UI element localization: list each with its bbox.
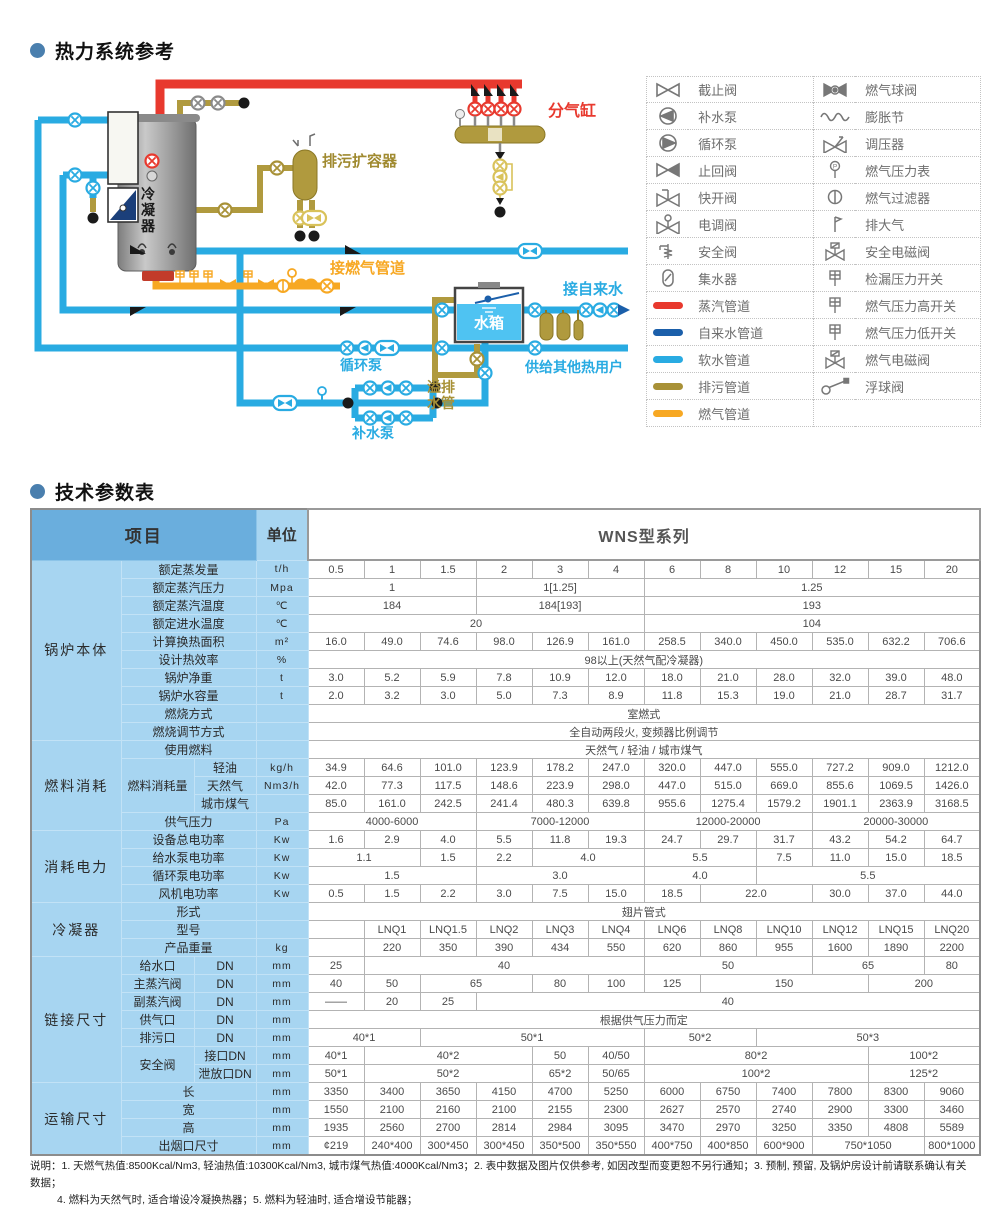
legend-row: 循环泵调压器 <box>646 130 981 157</box>
item-label-cell: 使用燃料 <box>121 741 256 759</box>
item-label-cell: 燃烧调节方式 <box>121 723 256 741</box>
value-cell: 3400 <box>364 1083 420 1101</box>
value-cell: 340.0 <box>700 633 756 651</box>
value-cell: 2200 <box>924 939 980 957</box>
value-cell: 5.5 <box>476 831 532 849</box>
value-cell: 50*1 <box>308 1065 364 1083</box>
value-cell: 29.7 <box>700 831 756 849</box>
value-cell: 15.0 <box>868 849 924 867</box>
value-cell: 3460 <box>924 1101 980 1119</box>
value-cell: 7.5 <box>756 849 812 867</box>
value-cell: 390 <box>476 939 532 957</box>
value-cell: 80 <box>532 975 588 993</box>
makeup-pump-label: 补水泵 <box>351 425 394 441</box>
value-cell: 258.5 <box>644 633 700 651</box>
value-cell: 2900 <box>812 1101 868 1119</box>
unit-cell: mm <box>256 1047 308 1065</box>
category-cell: 燃料消耗 <box>31 741 121 831</box>
value-cell: 42.0 <box>308 777 364 795</box>
value-cell: 28.0 <box>756 669 812 687</box>
value-cell: LNQ1 <box>364 921 420 939</box>
value-cell: 800*1000 <box>924 1137 980 1156</box>
value-cell: 80 <box>924 957 980 975</box>
unit-cell <box>256 741 308 759</box>
value-cell: 2300 <box>588 1101 644 1119</box>
value-cell: 30.0 <box>812 885 868 903</box>
value-cell: 450.0 <box>756 633 812 651</box>
value-cell: 64.7 <box>924 831 980 849</box>
table-row: 出烟口尺寸mm¢219240*400300*450300*450350*5003… <box>31 1137 980 1156</box>
unit-cell: m² <box>256 633 308 651</box>
other-users-label: 供给其他热用户 <box>524 359 623 375</box>
legend-label: 燃气电磁阀 <box>855 346 981 373</box>
value-cell: 77.3 <box>364 777 420 795</box>
value-cell: 955.6 <box>644 795 700 813</box>
item-label-cell: 额定进水温度 <box>121 615 256 633</box>
table-row: 额定蒸汽压力Mpa11[1.25]1.25 <box>31 579 980 597</box>
legend-row: 电调阀排大气 <box>646 211 981 238</box>
table-row: 循环泵电功率Kw1.53.04.05.5 <box>31 867 980 885</box>
value-cell: —— <box>308 993 364 1011</box>
value-cell: 178.2 <box>532 759 588 777</box>
item-sublabel-cell: 接口DN <box>194 1047 256 1065</box>
steam-header <box>455 84 545 218</box>
value-cell: 955 <box>756 939 812 957</box>
item-label-cell: 额定蒸汽压力 <box>121 579 256 597</box>
value-cell: 3.0 <box>476 867 644 885</box>
section-title-text: 热力系统参考 <box>55 37 175 64</box>
value-cell: 21.0 <box>812 687 868 705</box>
params-section-title: 技术参数表 <box>30 478 155 505</box>
value-cell: 50 <box>532 1047 588 1065</box>
legend-label: 燃气过滤器 <box>855 184 981 211</box>
unit-cell: mm <box>256 1137 308 1156</box>
unit-cell: mm <box>256 993 308 1011</box>
value-cell: 24.7 <box>644 831 700 849</box>
value-cell: 19.3 <box>588 831 644 849</box>
section-bullet-icon <box>30 43 45 58</box>
legend-label: 蒸汽管道 <box>688 292 813 319</box>
unit-cell: mm <box>256 1101 308 1119</box>
value-cell: 31.7 <box>756 831 812 849</box>
unit-cell <box>256 795 308 813</box>
item-label-cell: 高 <box>121 1119 256 1137</box>
unit-cell: mm <box>256 975 308 993</box>
value-cell: 64.6 <box>364 759 420 777</box>
item-label-cell: 给水口 <box>121 957 194 975</box>
leak-pressure-switch-icon <box>813 265 855 292</box>
value-cell: 632.2 <box>868 633 924 651</box>
unit-cell <box>256 723 308 741</box>
value-cell: 2.9 <box>364 831 420 849</box>
value-cell: 6000 <box>644 1083 700 1101</box>
value-cell: 8 <box>700 560 756 579</box>
value-cell: 434 <box>532 939 588 957</box>
value-cell: 1.5 <box>364 885 420 903</box>
item-label-cell: 出烟口尺寸 <box>121 1137 256 1156</box>
unit-cell: t <box>256 669 308 687</box>
table-row: 供气压力Pa4000-60007000-1200012000-200002000… <box>31 813 980 831</box>
unit-cell: mm <box>256 1029 308 1047</box>
table-row: 风机电功率Kw0.51.52.23.07.515.018.522.030.037… <box>31 885 980 903</box>
value-cell: 4 <box>588 560 644 579</box>
value-cell: 3095 <box>588 1119 644 1137</box>
item-label-cell: 设备总电功率 <box>121 831 256 849</box>
legend-label: 安全电磁阀 <box>855 238 981 265</box>
value-cell: 9060 <box>924 1083 980 1101</box>
value-cell <box>308 921 364 939</box>
item-label-cell: 型号 <box>121 921 256 939</box>
value-cell: 5.5 <box>644 849 756 867</box>
value-cell: 65 <box>812 957 924 975</box>
unit-cell: mm <box>256 1119 308 1137</box>
value-cell: 100*2 <box>644 1065 868 1083</box>
value-cell: 126.9 <box>532 633 588 651</box>
params-table: 项目 单位 WNS型系列 锅炉本体额定蒸发量t/h0.511.523468101… <box>30 508 981 1156</box>
legend-label: 燃气压力表 <box>855 157 981 184</box>
value-cell: 18.5 <box>924 849 980 867</box>
water-tank-label: 水箱 <box>474 314 504 332</box>
value-cell: 65 <box>420 975 532 993</box>
value-cell: 117.5 <box>420 777 476 795</box>
unit-cell: Kw <box>256 867 308 885</box>
steam-pipe-icon <box>646 292 688 319</box>
item-label-cell: 主蒸汽阀 <box>121 975 194 993</box>
value-cell: 1[1.25] <box>476 579 644 597</box>
value-cell: 860 <box>700 939 756 957</box>
unit-cell: ℃ <box>256 615 308 633</box>
value-cell: 242.5 <box>420 795 476 813</box>
value-cell: 855.6 <box>812 777 868 795</box>
value-cell: 3250 <box>756 1119 812 1137</box>
value-cell: 4.0 <box>420 831 476 849</box>
table-row: 安全阀接口DNmm40*140*25040/5080*2100*2 <box>31 1047 980 1065</box>
value-cell: 40 <box>364 957 644 975</box>
value-cell: 6 <box>644 560 700 579</box>
item-sublabel-cell: 轻油 <box>194 759 256 777</box>
value-cell: LNQ1.5 <box>420 921 476 939</box>
value-cell: 4808 <box>868 1119 924 1137</box>
legend-label: 快开阀 <box>688 184 813 211</box>
value-cell: 5.0 <box>476 687 532 705</box>
item-label-cell: 宽 <box>121 1101 256 1119</box>
unit-cell <box>256 705 308 723</box>
value-cell: 3.2 <box>364 687 420 705</box>
overflow-pipe-label: 溢排水管 <box>427 379 459 411</box>
legend-label: 电调阀 <box>688 211 813 238</box>
value-cell: 50*2 <box>644 1029 756 1047</box>
value-cell: 天然气 / 轻油 / 城市煤气 <box>308 741 980 759</box>
safety-valve-icon <box>646 238 688 265</box>
params-table-wrap: 项目 单位 WNS型系列 锅炉本体额定蒸发量t/h0.511.523468101… <box>30 508 981 1156</box>
table-row: 供气口DNmm根据供气压力而定 <box>31 1011 980 1029</box>
params-table-body: 锅炉本体额定蒸发量t/h0.511.52346810121520额定蒸汽压力Mp… <box>31 560 980 1155</box>
value-cell: 3470 <box>644 1119 700 1137</box>
circulation-pump-label: 循环泵 <box>340 357 382 373</box>
value-cell: 10 <box>756 560 812 579</box>
value-cell: 0.5 <box>308 885 364 903</box>
pressure-regulator-icon <box>813 130 855 157</box>
table-row: 锅炉水容量t2.03.23.05.07.38.911.815.319.021.0… <box>31 687 980 705</box>
legend-label: 循环泵 <box>688 130 813 157</box>
value-cell: 1426.0 <box>924 777 980 795</box>
value-cell: 320.0 <box>644 759 700 777</box>
value-cell: 193 <box>644 597 980 615</box>
item-label-cell: 燃料消耗量 <box>121 759 194 813</box>
value-cell: 98.0 <box>476 633 532 651</box>
value-cell: 74.6 <box>420 633 476 651</box>
table-row: 额定蒸汽温度℃184184[193]193 <box>31 597 980 615</box>
value-cell: 21.0 <box>700 669 756 687</box>
legend-row: 排污管道浮球阀 <box>646 373 981 400</box>
table-row: 额定进水温度℃20104 <box>31 615 980 633</box>
tap-water-pipe-icon <box>646 319 688 346</box>
legend-label: 检漏压力开关 <box>855 265 981 292</box>
legend-label: 止回阀 <box>688 157 813 184</box>
legend-label: 安全阀 <box>688 238 813 265</box>
value-cell: 161.0 <box>364 795 420 813</box>
value-cell: 40 <box>476 993 980 1011</box>
water-tank <box>455 282 523 342</box>
item-label-cell: 燃烧方式 <box>121 705 256 723</box>
value-cell: 2100 <box>476 1101 532 1119</box>
legend-label: 燃气管道 <box>688 400 813 427</box>
value-cell: LNQ10 <box>756 921 812 939</box>
value-cell: 25 <box>308 957 364 975</box>
value-cell: 100*2 <box>868 1047 980 1065</box>
value-cell: 184 <box>308 597 476 615</box>
legend: 截止阀燃气球阀补水泵膨胀节循环泵调压器止回阀燃气压力表快开阀燃气过滤器电调阀排大… <box>646 76 981 427</box>
safety-solenoid-valve-icon <box>813 238 855 265</box>
table-row: 锅炉净重t3.05.25.97.810.912.018.021.028.032.… <box>31 669 980 687</box>
item-label-cell: 锅炉净重 <box>121 669 256 687</box>
value-cell: 31.7 <box>924 687 980 705</box>
value-cell: 28.7 <box>868 687 924 705</box>
table-row: 排污口DNmm40*150*150*250*3 <box>31 1029 980 1047</box>
item-label-cell: 形式 <box>121 903 256 921</box>
value-cell: 447.0 <box>700 759 756 777</box>
value-cell: 1935 <box>308 1119 364 1137</box>
value-cell: 1600 <box>812 939 868 957</box>
value-cell: 184[193] <box>476 597 644 615</box>
legend-row: 自来水管道燃气压力低开关 <box>646 319 981 346</box>
value-cell: 101.0 <box>420 759 476 777</box>
header-unit: 单位 <box>256 509 308 560</box>
value-cell: 600*900 <box>756 1137 812 1156</box>
table-row: 冷凝器形式翅片管式 <box>31 903 980 921</box>
value-cell: 2627 <box>644 1101 700 1119</box>
value-cell: 44.0 <box>924 885 980 903</box>
unit-cell <box>256 903 308 921</box>
item-label-cell: 产品重量 <box>121 939 256 957</box>
value-cell: 室燃式 <box>308 705 980 723</box>
value-cell: 706.6 <box>924 633 980 651</box>
value-cell: 7000-12000 <box>476 813 644 831</box>
value-cell: 100 <box>588 975 644 993</box>
value-cell: 223.9 <box>532 777 588 795</box>
value-cell: 104 <box>644 615 980 633</box>
unit-cell: Kw <box>256 831 308 849</box>
table-row: 给水泵电功率Kw1.11.52.24.05.57.511.015.018.5 <box>31 849 980 867</box>
value-cell: 1.5 <box>420 560 476 579</box>
value-cell: 2160 <box>420 1101 476 1119</box>
value-cell: 4.0 <box>644 867 756 885</box>
condenser-label: 冷凝器 <box>141 186 159 234</box>
legend-label: 燃气压力低开关 <box>855 319 981 346</box>
value-cell: 18.5 <box>644 885 700 903</box>
value-cell: 1.1 <box>308 849 420 867</box>
table-row: 链接尺寸给水口DNmm2540506580 <box>31 957 980 975</box>
float-valve-icon <box>813 373 855 400</box>
value-cell: 1901.1 <box>812 795 868 813</box>
value-cell: 447.0 <box>644 777 700 795</box>
unit-cell <box>256 921 308 939</box>
value-cell: 2.2 <box>476 849 532 867</box>
value-cell: 161.0 <box>588 633 644 651</box>
item-label-cell: 计算换热面积 <box>121 633 256 651</box>
gas-ball-valve-icon <box>813 76 855 103</box>
value-cell: 43.2 <box>812 831 868 849</box>
value-cell: 12.0 <box>588 669 644 687</box>
quick-open-valve-icon <box>646 184 688 211</box>
tap-water-label: 接自来水 <box>563 280 624 298</box>
page: P <box>0 0 981 1226</box>
value-cell: 4700 <box>532 1083 588 1101</box>
unit-cell: Kw <box>256 849 308 867</box>
value-cell: 全自动两段火, 变频器比例调节 <box>308 723 980 741</box>
value-cell: 2700 <box>420 1119 476 1137</box>
value-cell: 65*2 <box>532 1065 588 1083</box>
legend-label: 燃气球阀 <box>855 76 981 103</box>
table-row: 燃料消耗量轻油kg/h34.964.6101.0123.9178.2247.03… <box>31 759 980 777</box>
category-cell: 链接尺寸 <box>31 957 121 1083</box>
legend-row: 集水器检漏压力开关 <box>646 265 981 292</box>
value-cell: 8.9 <box>588 687 644 705</box>
header-series: WNS型系列 <box>308 509 980 560</box>
thermal-section-title: 热力系统参考 <box>30 37 175 64</box>
value-cell: 34.9 <box>308 759 364 777</box>
diagram-svg: 分气缸 排污扩容器 接燃气管道 接自来水 水箱 循环泵 补水泵 供给其他热用户 <box>30 66 630 460</box>
value-cell: LNQ4 <box>588 921 644 939</box>
legend-row: 软水管道燃气电磁阀 <box>646 346 981 373</box>
table-row: 副蒸汽阀DNmm——202540 <box>31 993 980 1011</box>
value-cell: 148.6 <box>476 777 532 795</box>
category-cell: 消耗电力 <box>31 831 121 903</box>
legend-label: 补水泵 <box>688 103 813 130</box>
value-cell: 1069.5 <box>868 777 924 795</box>
item-label-cell: 额定蒸汽温度 <box>121 597 256 615</box>
thermal-system-diagram: 分气缸 排污扩容器 接燃气管道 接自来水 水箱 循环泵 补水泵 供给其他热用户 … <box>30 66 630 465</box>
value-cell: 19.0 <box>756 687 812 705</box>
section-bullet-icon <box>30 484 45 499</box>
item-sublabel-cell: 城市煤气 <box>194 795 256 813</box>
expansion-joint-icon <box>813 103 855 130</box>
value-cell: 8300 <box>868 1083 924 1101</box>
legend-row: 蒸汽管道燃气压力高开关 <box>646 292 981 319</box>
value-cell: 85.0 <box>308 795 364 813</box>
value-cell: 1212.0 <box>924 759 980 777</box>
makeup-pump-icon <box>646 103 688 130</box>
soft-water-pipe-icon <box>646 346 688 373</box>
legend-row: 补水泵膨胀节 <box>646 103 981 130</box>
value-cell: 50*1 <box>420 1029 644 1047</box>
value-cell: 2970 <box>700 1119 756 1137</box>
value-cell: 3350 <box>812 1119 868 1137</box>
category-cell: 冷凝器 <box>31 903 121 957</box>
legend-label: 软水管道 <box>688 346 813 373</box>
value-cell: LNQ2 <box>476 921 532 939</box>
steam-header-label: 分气缸 <box>548 101 596 120</box>
item-label-cell: 安全阀 <box>121 1047 194 1083</box>
value-cell: LNQ20 <box>924 921 980 939</box>
category-cell: 运输尺寸 <box>31 1083 121 1156</box>
value-cell: 48.0 <box>924 669 980 687</box>
value-cell: 12000-20000 <box>644 813 812 831</box>
value-cell: ¢219 <box>308 1137 364 1156</box>
value-cell: 50/65 <box>588 1065 644 1083</box>
item-sublabel-cell: DN <box>194 975 256 993</box>
value-cell: LNQ12 <box>812 921 868 939</box>
value-cell: 3.0 <box>420 687 476 705</box>
value-cell: 11.8 <box>532 831 588 849</box>
value-cell: 5.5 <box>756 867 980 885</box>
value-cell: 3350 <box>308 1083 364 1101</box>
unit-cell: kg <box>256 939 308 957</box>
value-cell: 300*450 <box>476 1137 532 1156</box>
value-cell: 1550 <box>308 1101 364 1119</box>
value-cell: 4000-6000 <box>308 813 476 831</box>
value-cell: 20 <box>364 993 420 1011</box>
gas-solenoid-valve-icon <box>813 346 855 373</box>
table-row: 主蒸汽阀DNmm40506580100125150200 <box>31 975 980 993</box>
value-cell: 翅片管式 <box>308 903 980 921</box>
value-cell: 669.0 <box>756 777 812 795</box>
section-title-text: 技术参数表 <box>55 478 155 505</box>
value-cell: 350*550 <box>588 1137 644 1156</box>
table-row: 锅炉本体额定蒸发量t/h0.511.52346810121520 <box>31 560 980 579</box>
value-cell: 400*850 <box>700 1137 756 1156</box>
table-row: 高mm1935256027002814298430953470297032503… <box>31 1119 980 1137</box>
value-cell: 2 <box>476 560 532 579</box>
value-cell: 11.0 <box>812 849 868 867</box>
item-label-cell: 额定蒸发量 <box>121 560 256 579</box>
gas-pressure-low-switch-icon <box>813 319 855 346</box>
value-cell: 15 <box>868 560 924 579</box>
legend-label: 集水器 <box>688 265 813 292</box>
value-cell: 3.0 <box>476 885 532 903</box>
value-cell: 7.8 <box>476 669 532 687</box>
gate-valve-icon <box>646 76 688 103</box>
legend-label: 排大气 <box>855 211 981 238</box>
value-cell: 40*1 <box>308 1029 420 1047</box>
value-cell: 7400 <box>756 1083 812 1101</box>
legend-label: 膨胀节 <box>855 103 981 130</box>
unit-cell: mm <box>256 1083 308 1101</box>
value-cell: 40*1 <box>308 1047 364 1065</box>
unit-cell: ℃ <box>256 597 308 615</box>
value-cell: 5250 <box>588 1083 644 1101</box>
circulation-pump-icon <box>646 130 688 157</box>
value-cell: 480.3 <box>532 795 588 813</box>
value-cell: 1.5 <box>420 849 476 867</box>
water-collector-icon <box>646 265 688 292</box>
item-label-cell: 循环泵电功率 <box>121 867 256 885</box>
item-sublabel-cell: DN <box>194 1029 256 1047</box>
value-cell: 98以上(天然气配冷凝器) <box>308 651 980 669</box>
check-valve-icon <box>646 157 688 184</box>
value-cell: 22.0 <box>700 885 812 903</box>
item-label-cell: 给水泵电功率 <box>121 849 256 867</box>
